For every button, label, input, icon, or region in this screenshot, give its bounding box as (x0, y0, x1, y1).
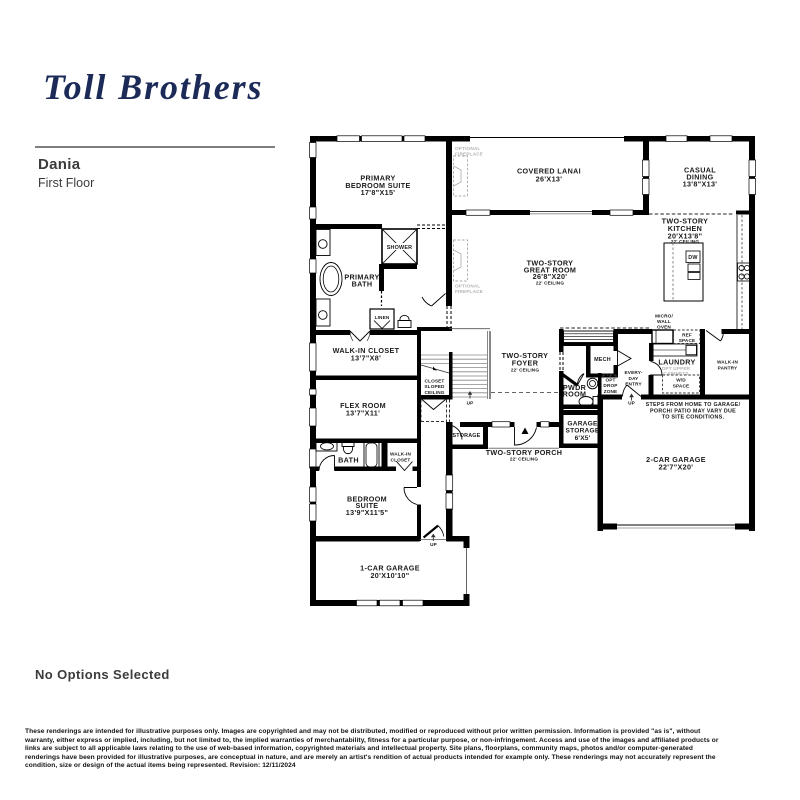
svg-text:13'7"X8': 13'7"X8' (351, 353, 381, 362)
svg-text:ZONE: ZONE (604, 389, 618, 394)
svg-text:DAY: DAY (629, 376, 640, 381)
svg-text:22'7"X20': 22'7"X20' (659, 463, 694, 472)
svg-text:GARAGE: GARAGE (567, 421, 598, 428)
svg-text:WALK-IN: WALK-IN (390, 452, 412, 457)
svg-text:STEPS FROM HOME TO GARAGE/: STEPS FROM HOME TO GARAGE/ (646, 402, 741, 408)
svg-text:SPACE: SPACE (673, 384, 690, 389)
svg-text:22' CEILING: 22' CEILING (510, 457, 538, 462)
svg-text:STORAGE: STORAGE (453, 433, 481, 439)
svg-text:SPACE: SPACE (679, 338, 696, 343)
svg-text:DW: DW (688, 255, 698, 261)
svg-text:OPTIONAL: OPTIONAL (455, 146, 480, 151)
svg-text:OVEN: OVEN (657, 325, 671, 330)
svg-text:LINEN: LINEN (375, 315, 390, 320)
svg-text:PORCH/ PATIO MAY VARY DUE: PORCH/ PATIO MAY VARY DUE (650, 408, 736, 414)
svg-text:22' CEILING: 22' CEILING (511, 368, 539, 373)
svg-text:CEILING: CEILING (424, 390, 444, 395)
svg-text:WALK-IN: WALK-IN (717, 360, 739, 365)
svg-text:WALL: WALL (657, 319, 671, 324)
svg-text:DROP: DROP (603, 383, 617, 388)
svg-text:22' CEILING: 22' CEILING (536, 281, 564, 286)
svg-text:SLOPED: SLOPED (424, 384, 445, 389)
svg-text:MECH: MECH (594, 357, 611, 363)
svg-text:ROOM: ROOM (563, 390, 587, 399)
svg-text:20'X10'10": 20'X10'10" (370, 571, 409, 580)
svg-text:UP: UP (628, 401, 635, 406)
svg-text:REF: REF (682, 333, 692, 338)
svg-text:LAUNDRY: LAUNDRY (658, 357, 695, 366)
svg-text:CLOSET: CLOSET (425, 379, 445, 384)
svg-text:PANTRY: PANTRY (718, 366, 738, 371)
svg-text:OPTIONAL: OPTIONAL (455, 284, 480, 289)
svg-text:UP: UP (467, 400, 474, 405)
svg-text:13'7"X11': 13'7"X11' (346, 408, 380, 417)
svg-text:FIREPLACE: FIREPLACE (455, 152, 483, 157)
svg-text:FOYER: FOYER (512, 359, 539, 368)
svg-text:OPT: OPT (605, 378, 615, 383)
svg-text:EVERY-: EVERY- (625, 370, 643, 375)
svg-text:26'8"X20': 26'8"X20' (533, 272, 568, 281)
svg-text:TO SITE CONDITIONS.: TO SITE CONDITIONS. (662, 415, 725, 421)
svg-text:STORAGE: STORAGE (566, 428, 600, 435)
svg-text:13'9"X11'5": 13'9"X11'5" (346, 508, 388, 517)
svg-text:W/D: W/D (676, 378, 686, 383)
svg-text:BATH: BATH (338, 455, 359, 464)
svg-text:SHOWER: SHOWER (387, 245, 412, 251)
svg-text:13'8"X13': 13'8"X13' (683, 180, 718, 189)
svg-text:6'X5': 6'X5' (575, 435, 591, 442)
svg-text:MICRO/: MICRO/ (655, 314, 673, 319)
svg-text:UP: UP (430, 542, 437, 547)
svg-text:CLOSET: CLOSET (391, 458, 411, 463)
svg-text:BATH: BATH (352, 280, 373, 289)
svg-text:26'X13': 26'X13' (536, 174, 563, 183)
svg-text:FIREPLACE: FIREPLACE (455, 289, 483, 294)
svg-text:17'8"X15': 17'8"X15' (361, 188, 396, 197)
